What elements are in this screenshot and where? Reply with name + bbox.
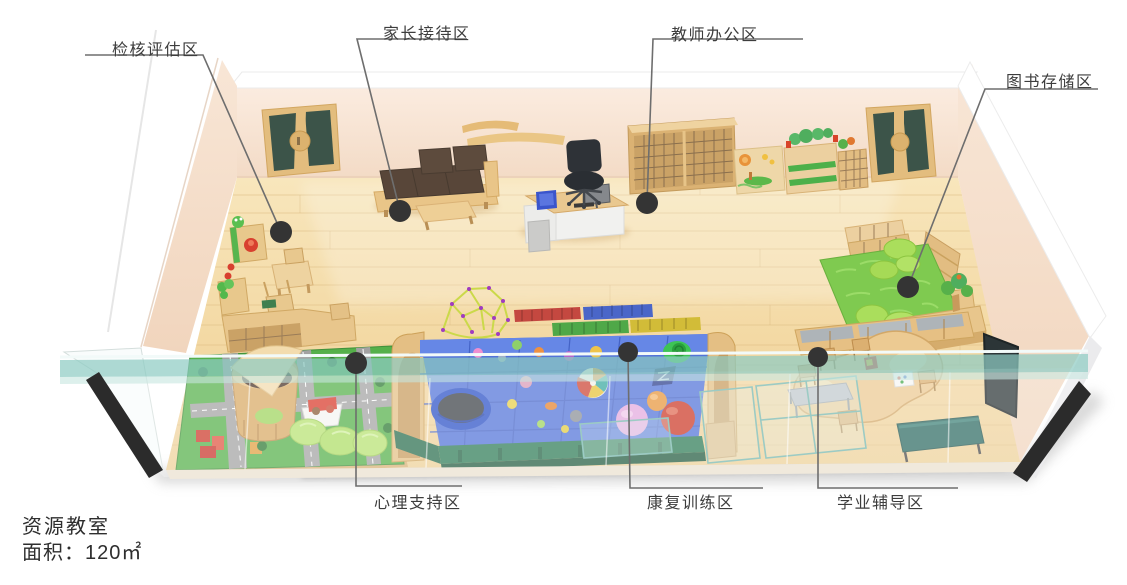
stool [330,303,350,320]
zone-dot-rehab-training [618,342,638,362]
zone-dot-parent-reception [389,200,411,222]
zone-label-parent-reception: 家长接待区 [383,20,471,44]
zone-label-academic-tutoring: 学业辅导区 [837,489,925,513]
door-right [866,104,936,182]
glass-wall [60,348,1088,477]
bookshelf [628,118,738,194]
toy-panel [734,146,785,194]
zone-label-psych-support: 心理支持区 [374,489,462,513]
zone-dot-academic-tutoring [808,347,828,367]
zone-dot-psych-support [345,352,367,374]
zone-label-teacher-office: 教师办公区 [671,21,759,45]
zone-label-book-storage: 图书存储区 [1006,68,1094,92]
floorplan-figure: 检核评估区 家长接待区 教师办公区 图书存储区 心理支持区 康复训练区 学业辅导… [0,0,1127,585]
room-area-label: 面积：120㎡ [22,536,142,565]
room-title: 资源教室 [22,510,110,539]
zone-dot-book-storage [897,276,919,298]
zone-dot-teacher-office [636,192,658,214]
zone-label-assessment: 检核评估区 [112,36,200,60]
zone-dot-assessment [270,221,292,243]
room-render [0,0,1127,585]
zone-label-rehab-training: 康复训练区 [647,489,735,513]
door-left [262,104,340,177]
